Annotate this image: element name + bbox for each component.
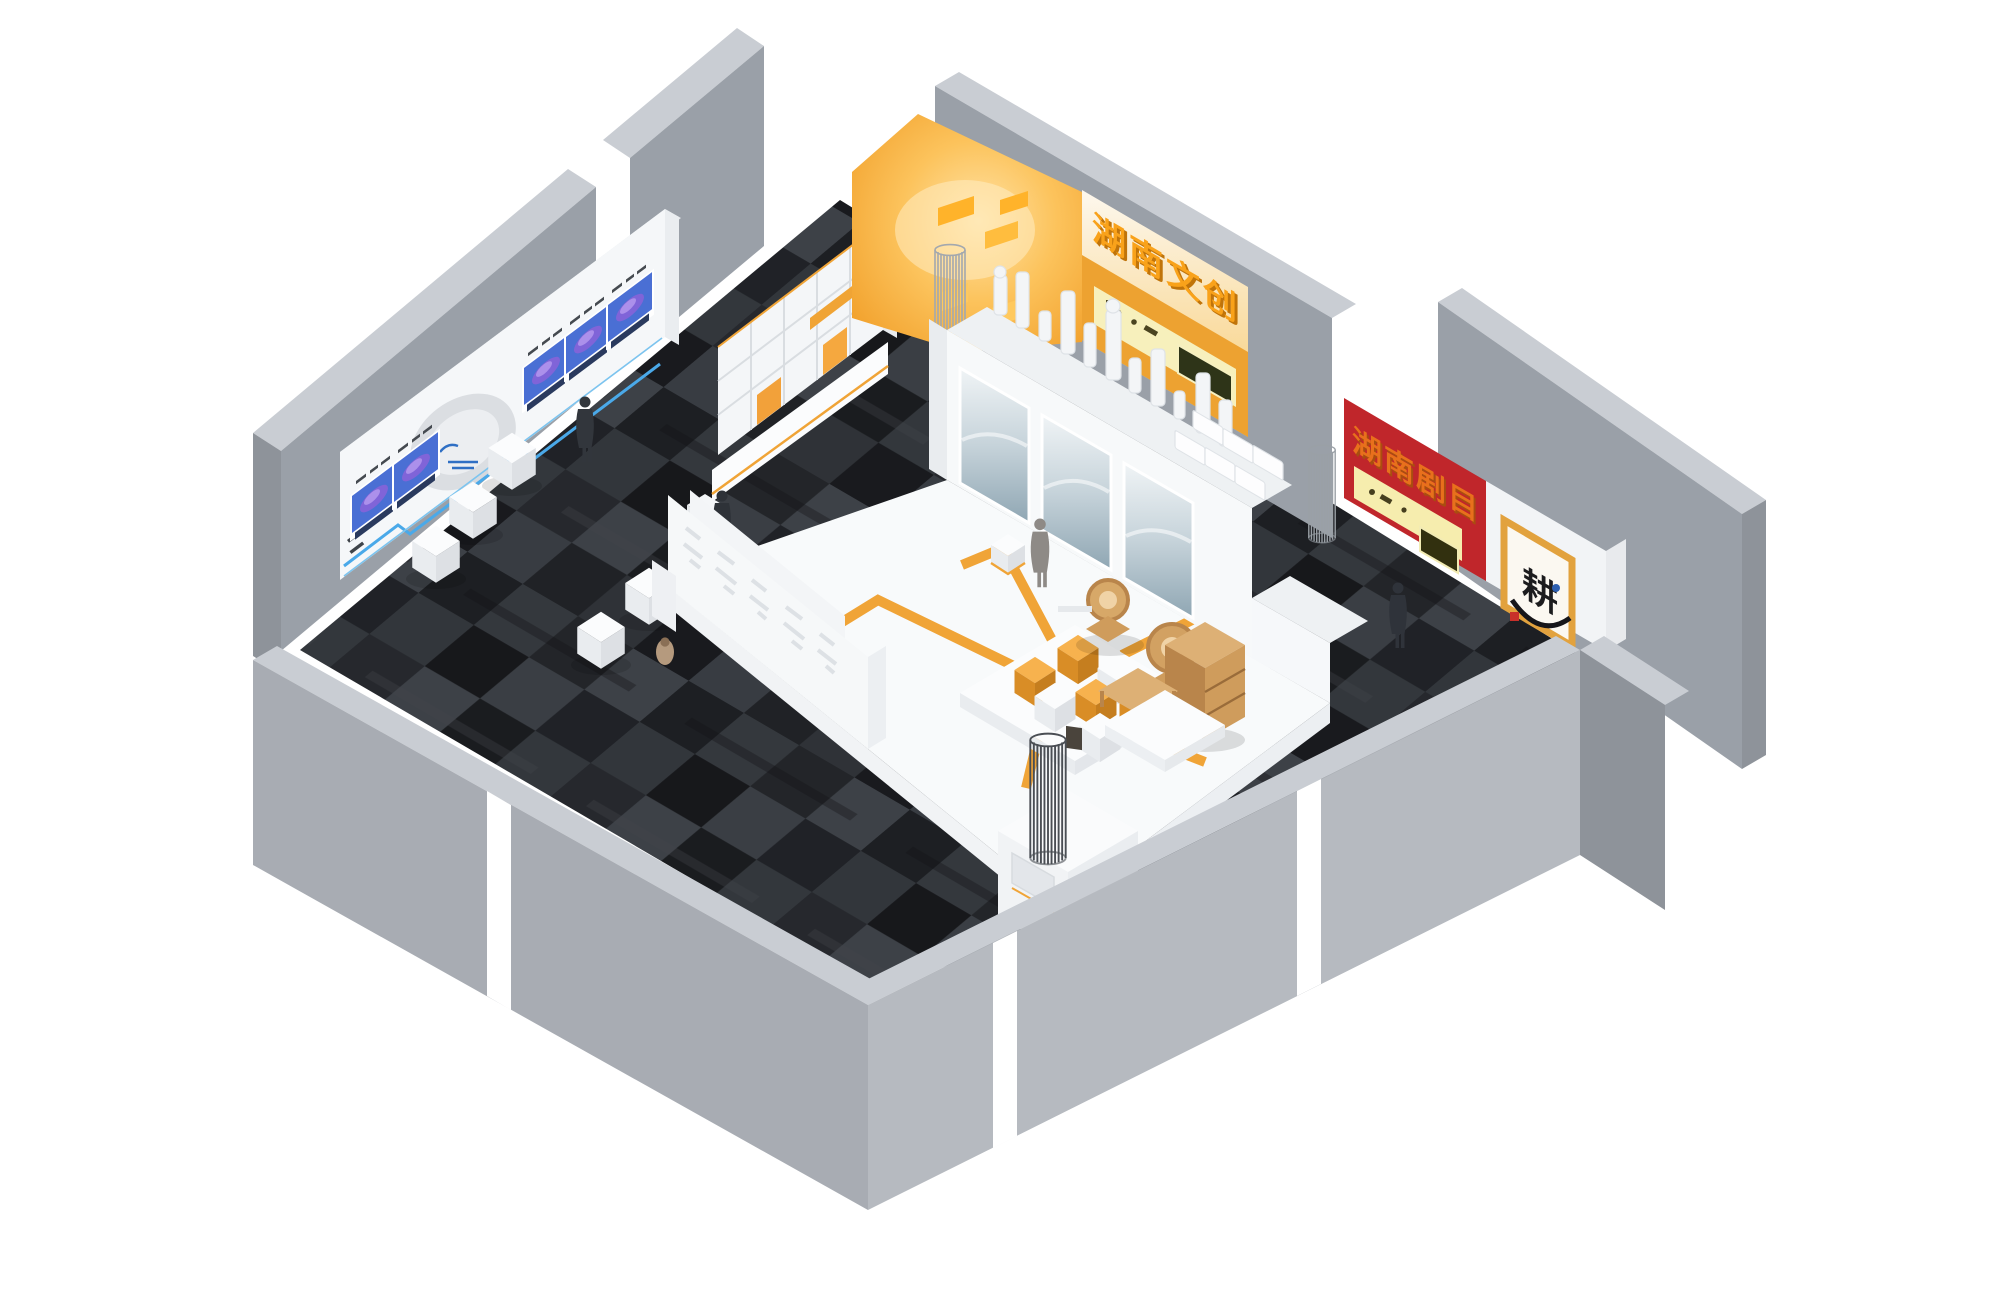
wood-armchair [1086, 580, 1130, 642]
isometric-scene: 湖南文创 湖南文创 湖南剧目 湖南剧目 耕 [0, 0, 2000, 1305]
blue-accent-dot [1552, 584, 1560, 592]
exhibition-hall-render: 湖南文创 湖南文创 湖南剧目 湖南剧目 耕 [0, 0, 2000, 1305]
wall-gap [487, 791, 511, 1010]
wall-gap [1297, 779, 1321, 996]
red-seal [1510, 612, 1519, 621]
wall-gap [993, 931, 1017, 1148]
